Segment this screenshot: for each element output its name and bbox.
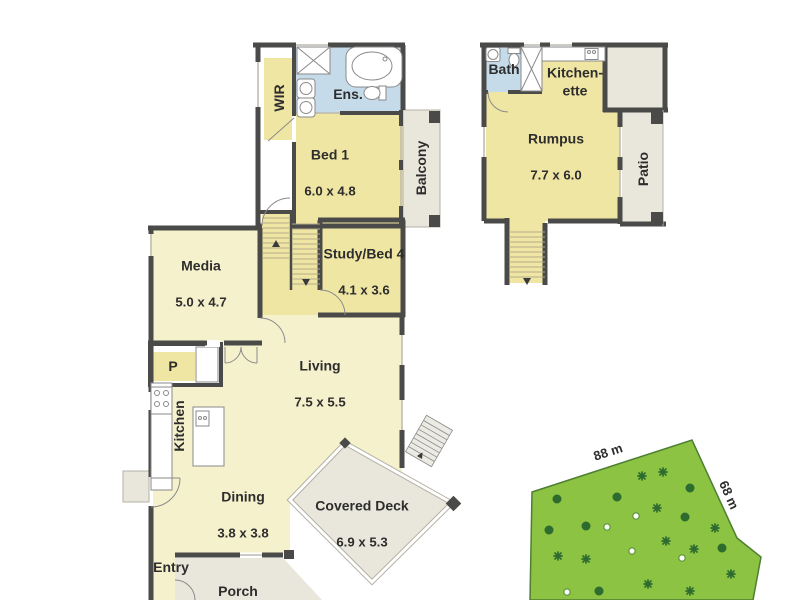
room-label-ens: Ens. [333,85,363,103]
patio-post [651,212,663,224]
dining-dims: 3.8 x 3.8 [217,525,268,542]
study-name: Study/Bed 4 [324,245,405,263]
room-label-entry: Entry [153,558,189,576]
media-dims: 5.0 x 4.7 [175,294,226,311]
room-label-kitchen: Kitchen [170,400,188,451]
room-label-balcony: Balcony [412,141,430,195]
land-boundary [530,440,761,600]
media-name: Media [175,257,226,275]
bed1-dims: 6.0 x 4.8 [304,183,355,200]
room-label-covered-deck: Covered Deck 6.9 x 5.3 [315,478,408,569]
room-label-living: Living 7.5 x 5.5 [294,338,345,429]
kitchen-name: Kitchen [170,400,188,451]
patio-post [651,112,663,124]
rumpus-dims: 7.7 x 6.0 [528,167,584,184]
rumpus-name: Rumpus [528,130,584,148]
entry-name: Entry [153,558,189,576]
balcony-post [429,215,440,227]
wir-name: WIR [270,84,288,111]
living-name: Living [294,357,345,375]
room-label-patio: Patio [634,152,652,186]
covered-deck-dims: 6.9 x 5.3 [315,534,408,551]
kitchenette-name: Kitchen- ette [547,64,603,101]
kitchenette-fixtures [542,47,605,61]
pantry-counter [196,347,218,382]
bathtub [346,47,402,87]
room-label-bed1: Bed 1 6.0 x 4.8 [304,127,355,218]
kitchenette-counter [542,47,605,61]
room-label-rumpus: Rumpus 7.7 x 6.0 [528,111,584,202]
side-landing [123,471,149,502]
balcony-name: Balcony [412,141,430,195]
room-label-kitchenette: Kitchen- ette [547,64,603,101]
bed1-name: Bed 1 [304,146,355,164]
balcony-post [429,111,440,123]
pantry-door-gap [205,340,220,347]
room-label-pantry: P [168,357,177,375]
porch-name: Porch [218,582,258,600]
room-label-media: Media 5.0 x 4.7 [175,238,226,329]
room-label-dining: Dining 3.8 x 3.8 [217,469,268,560]
room-label-bath: Bath [488,60,519,78]
bath-name: Bath [488,60,519,78]
ens-name: Ens. [333,85,363,103]
room-label-wir: WIR [270,84,288,111]
deck-stairs [406,415,453,466]
upper-toilet [508,48,520,54]
dining-name: Dining [217,488,268,506]
land-plot [530,440,761,600]
ground-floor [123,43,461,600]
room-label-study: Study/Bed 4 4.1 x 3.6 [324,226,405,317]
upper-roof-area [607,47,663,109]
study-dims: 4.1 x 3.6 [324,282,405,299]
living-dims: 7.5 x 5.5 [294,394,345,411]
room-label-porch: Porch [218,582,258,600]
pantry-name: P [168,357,177,375]
deck-post [284,550,294,559]
patio-name: Patio [634,152,652,186]
covered-deck-name: Covered Deck [315,497,408,515]
floorplan-canvas: WIR Ens. Bed 1 6.0 x 4.8 Balcony Media 5… [0,0,800,600]
